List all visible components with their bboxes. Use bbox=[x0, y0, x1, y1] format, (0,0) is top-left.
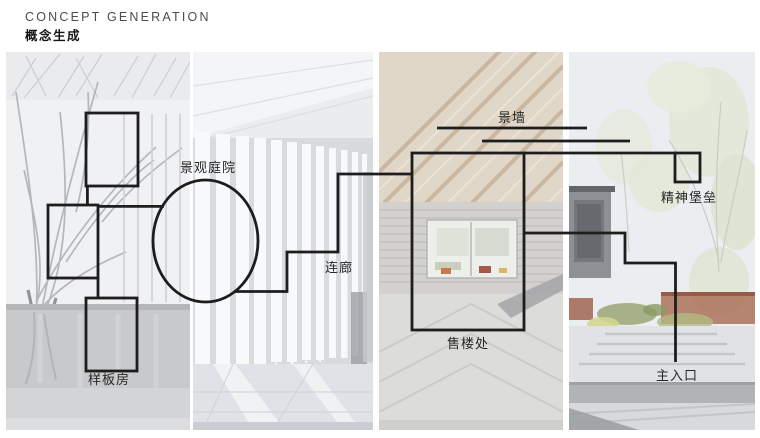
corridor-photo-image bbox=[193, 52, 373, 430]
label-landscape-wall: 景墙 bbox=[498, 107, 526, 126]
page-title-english: CONCEPT GENERATION bbox=[25, 10, 211, 24]
label-main-entrance: 主入口 bbox=[656, 365, 698, 384]
label-corridor: 连廊 bbox=[325, 257, 353, 276]
page-title-chinese: 概念生成 bbox=[25, 25, 81, 44]
label-model-house: 样板房 bbox=[88, 369, 130, 388]
label-landscape-courtyard: 景观庭院 bbox=[180, 157, 236, 176]
label-spirit-fortress: 精神堡垒 bbox=[661, 187, 717, 206]
label-sales-office: 售楼处 bbox=[447, 333, 489, 352]
slide-canvas: CONCEPT GENERATION 概念生成 bbox=[0, 0, 760, 438]
interior-photo-image bbox=[379, 52, 563, 430]
photo-panel-corridor bbox=[193, 52, 373, 430]
photo-panel-interior bbox=[379, 52, 563, 430]
